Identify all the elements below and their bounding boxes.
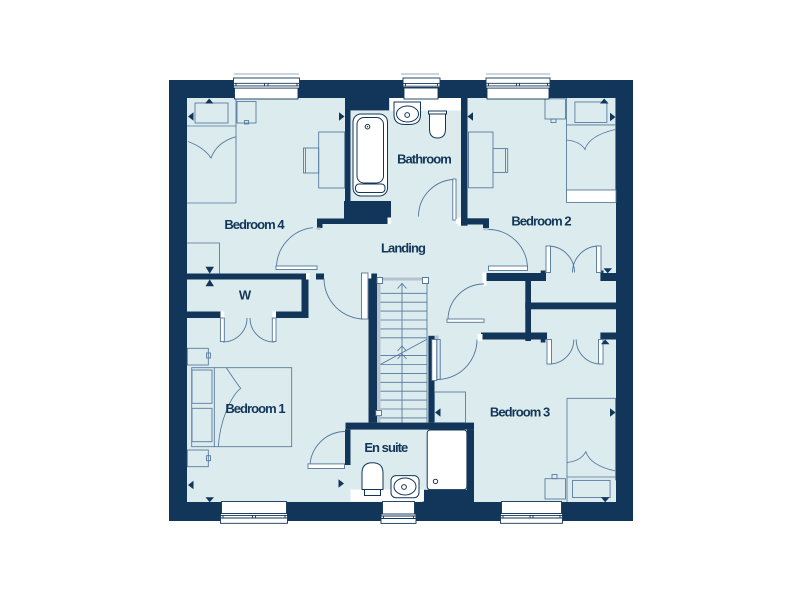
svg-text:Bedroom 3: Bedroom 3 <box>490 404 550 419</box>
svg-text:Bedroom 2: Bedroom 2 <box>511 214 571 229</box>
svg-text:Landing: Landing <box>381 241 426 256</box>
svg-text:Bathroom: Bathroom <box>397 151 451 166</box>
svg-text:En suite: En suite <box>364 440 408 455</box>
svg-text:Bedroom 4: Bedroom 4 <box>224 217 285 232</box>
svg-text:Bedroom 1: Bedroom 1 <box>225 401 285 416</box>
svg-text:W: W <box>239 288 252 303</box>
